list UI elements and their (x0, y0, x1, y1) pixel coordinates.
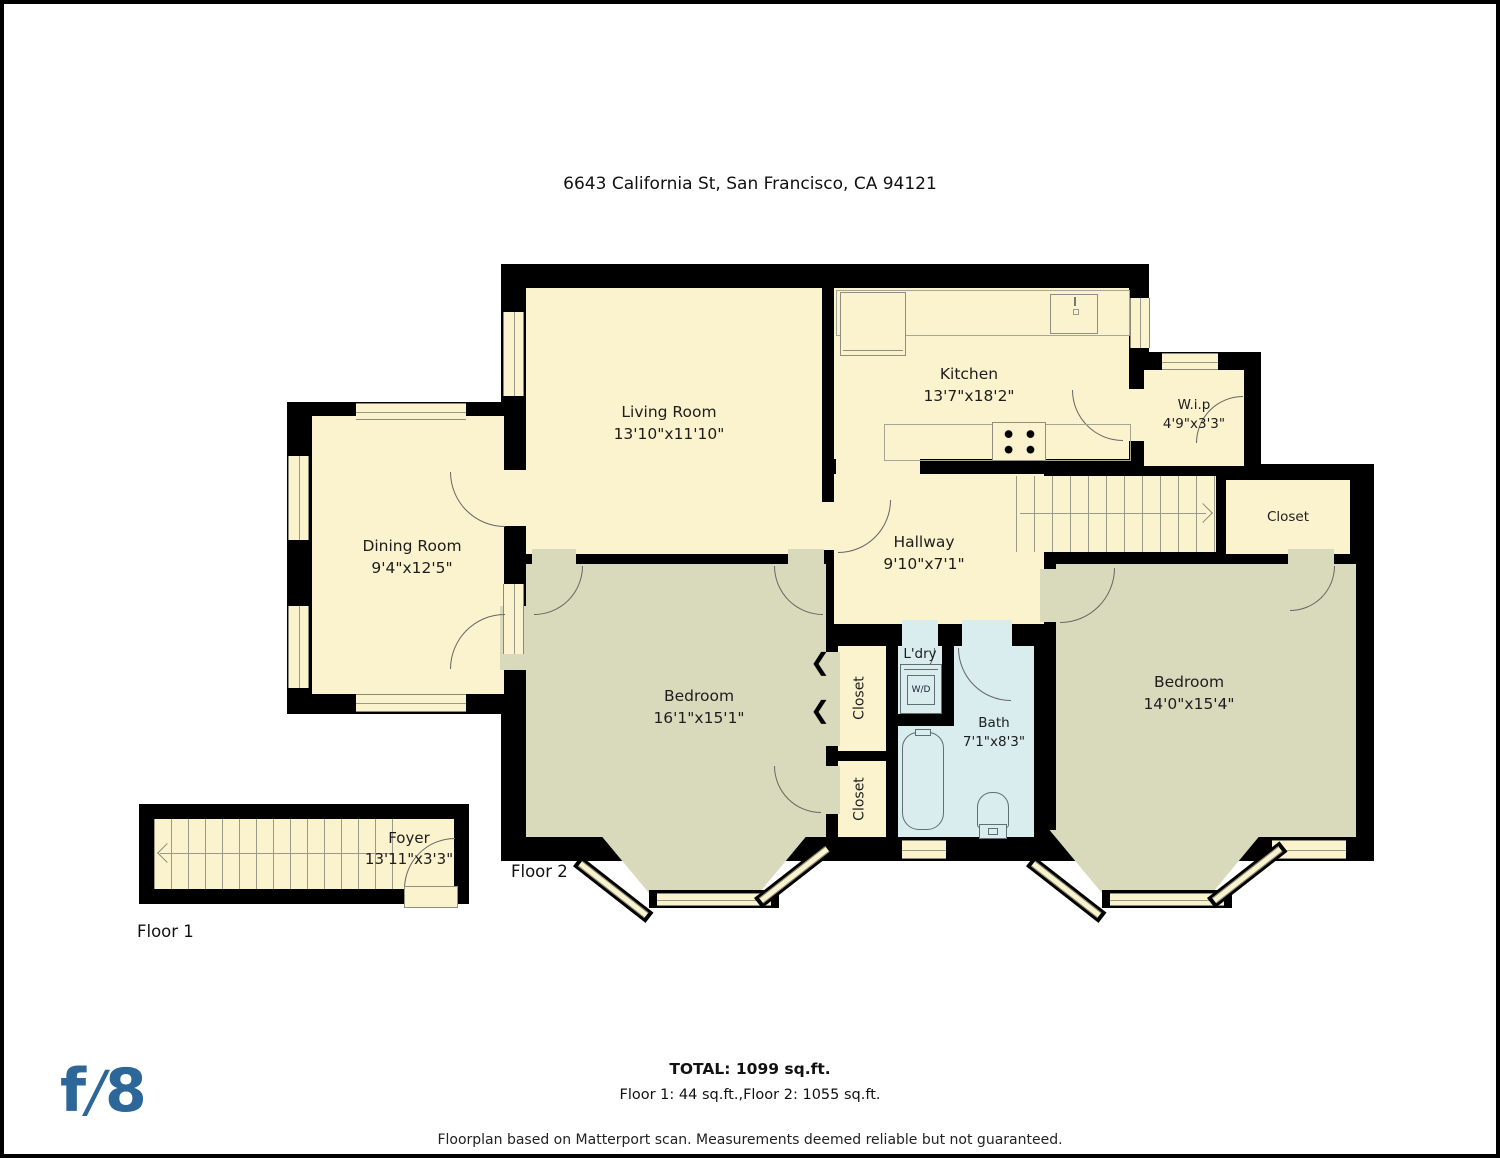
room-dims: 13'10"x11'10" (544, 424, 794, 446)
room-label-kitchen: Kitchen 13'7"x18'2" (844, 364, 1094, 407)
logo-eight: 8 (105, 1056, 147, 1126)
room-dims: 13'7"x18'2" (844, 386, 1094, 408)
stove-icon (992, 422, 1046, 461)
opening-bedl-closet2 (822, 766, 840, 814)
room-name: Bath (932, 714, 1056, 733)
stairs-up-arrow-icon (1193, 503, 1213, 523)
bifold-door-icon: ❮ (810, 650, 830, 674)
room-dims: 9'4"x12'5" (304, 558, 520, 580)
window-wip-top (1162, 353, 1218, 370)
foyer-door-leaf (404, 886, 458, 908)
floor1-label: Floor 1 (137, 922, 194, 941)
toilet-tank (979, 824, 1007, 839)
room-name: Kitchen (844, 364, 1094, 386)
kitchen-sink-icon (1050, 294, 1098, 334)
room-label-bath: Bath 7'1"x8'3" (932, 714, 1056, 752)
washer-dryer-icon: W/D (900, 664, 942, 714)
floor2-label: Floor 2 (511, 862, 568, 881)
window-dining-left-upper (288, 456, 309, 540)
floor-areas-text: Floor 1: 44 sq.ft.,Floor 2: 1055 sq.ft. (4, 1087, 1496, 1103)
room-label-wip: W.i.p 4'9"x3'3" (1132, 396, 1256, 434)
stairs-floor2-line (1020, 513, 1206, 514)
fridge-icon (840, 292, 906, 356)
toilet-icon (977, 792, 1009, 828)
room-name: Living Room (544, 402, 794, 424)
room-name: Bedroom (1064, 672, 1314, 694)
opening-hall-bedr (1040, 569, 1060, 622)
room-name: L'dry (888, 645, 952, 664)
room-label-closet-right: Closet (1226, 508, 1350, 527)
room-dims: 7'1"x8'3" (932, 733, 1056, 752)
window-bedl-left (503, 584, 524, 654)
window-living-left (503, 312, 524, 396)
window-dining-left-lower (288, 606, 309, 688)
opening-hall-bath (962, 620, 1012, 650)
room-name: Foyer (334, 828, 484, 849)
total-area-text: TOTAL: 1099 sq.ft. (4, 1060, 1496, 1078)
room-label-foyer: Foyer 13'11"x3'3" (334, 828, 484, 870)
washer-dryer-label: W/D (907, 675, 935, 705)
window-kitchen-right (1130, 298, 1150, 348)
room-dims: 13'11"x3'3" (334, 849, 484, 870)
room-label-closet-mid-lower: Closet (852, 752, 872, 847)
room-label-laundry: L'dry (888, 645, 952, 664)
bay-window-center-right-bed (1110, 893, 1224, 906)
room-name: Closet (1226, 508, 1350, 527)
stairs-down-arrow-icon (157, 843, 177, 863)
room-label-dining: Dining Room 9'4"x12'5" (304, 536, 520, 579)
room-name: W.i.p (1132, 396, 1256, 415)
room-name: Bedroom (574, 686, 824, 708)
room-label-bedroom-right: Bedroom 14'0"x15'4" (1064, 672, 1314, 715)
room-dims: 14'0"x15'4" (1064, 694, 1314, 716)
logo-f: f (60, 1056, 86, 1126)
room-label-hallway: Hallway 9'10"x7'1" (799, 532, 1049, 575)
f8-logo: f/8 (60, 1061, 147, 1121)
floorplan-page: 6643 California St, San Francisco, CA 94… (0, 0, 1500, 1158)
window-dining-top (356, 403, 466, 420)
room-label-living: Living Room 13'10"x11'10" (544, 402, 794, 445)
room-label-bedroom-left: Bedroom 16'1"x15'1" (574, 686, 824, 729)
room-name: Hallway (799, 532, 1049, 554)
disclaimer-text: Floorplan based on Matterport scan. Meas… (4, 1132, 1496, 1148)
address-title: 6643 California St, San Francisco, CA 94… (4, 174, 1496, 194)
room-label-closet-mid-upper: Closet (852, 651, 872, 746)
bay-window-center-left-bed (657, 893, 771, 906)
room-dims: 4'9"x3'3" (1132, 415, 1256, 434)
window-bath-bottom (902, 840, 946, 859)
logo-slash: / (86, 1060, 105, 1125)
room-dims: 16'1"x15'1" (574, 708, 824, 730)
window-dining-bottom (356, 694, 466, 712)
room-name: Dining Room (304, 536, 520, 558)
room-dims: 9'10"x7'1" (799, 554, 1049, 576)
